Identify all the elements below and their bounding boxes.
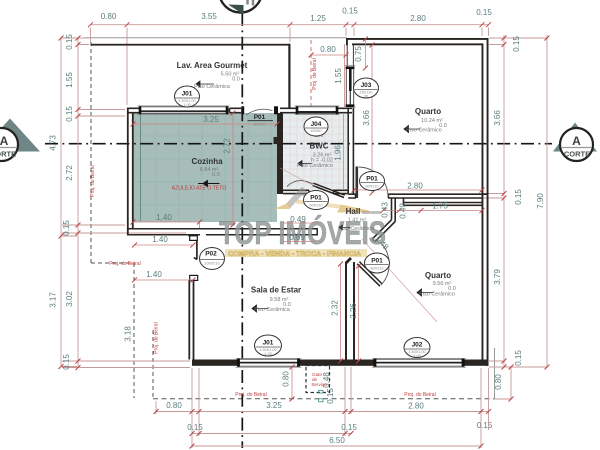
svg-text:J01: J01 — [263, 340, 274, 347]
svg-text:0.15: 0.15 — [342, 7, 358, 16]
svg-text:A: A — [572, 134, 581, 148]
svg-text:0.15: 0.15 — [512, 36, 521, 52]
svg-text:CORTE: CORTE — [564, 150, 590, 159]
svg-text:3.66: 3.66 — [493, 110, 502, 126]
svg-text:0.15: 0.15 — [187, 423, 203, 432]
svg-text:Proj. do Beiral: Proj. do Beiral — [90, 165, 96, 196]
svg-text:Piso Cerâmica: Piso Cerâmica — [194, 84, 231, 90]
svg-text:Proj. do Beiral: Proj. do Beiral — [404, 392, 435, 398]
svg-text:80X210: 80X210 — [253, 122, 266, 126]
svg-text:J02: J02 — [412, 342, 423, 349]
svg-text:0.80: 0.80 — [320, 45, 336, 54]
svg-text:Serviço: Serviço — [311, 382, 327, 387]
svg-text:1.40: 1.40 — [156, 213, 172, 222]
svg-text:0.15: 0.15 — [514, 350, 523, 366]
svg-text:Piso Cerâmica: Piso Cerâmica — [338, 226, 375, 232]
svg-text:0.15: 0.15 — [341, 423, 357, 432]
svg-text:0.43: 0.43 — [381, 202, 390, 218]
svg-text:3.66: 3.66 — [362, 110, 371, 126]
svg-text:0.15: 0.15 — [477, 421, 493, 430]
svg-text:Cozinha: Cozinha — [191, 157, 223, 166]
svg-text:0.15: 0.15 — [326, 388, 335, 404]
svg-text:1.75: 1.75 — [432, 202, 448, 211]
svg-text:1.40: 1.40 — [146, 270, 162, 279]
svg-text:3.79: 3.79 — [493, 269, 502, 285]
svg-text:80X210: 80X210 — [370, 267, 383, 271]
svg-text:1.25: 1.25 — [310, 14, 326, 23]
svg-text:Piso Cerâmico: Piso Cerâmico — [297, 163, 333, 169]
svg-text:0.0: 0.0 — [232, 77, 240, 83]
svg-text:1.00: 1.00 — [264, 352, 271, 356]
svg-text:1.00: 1.00 — [183, 103, 190, 107]
svg-text:2.26: 2.26 — [349, 303, 358, 319]
svg-text:A: A — [0, 134, 9, 148]
svg-text:3.25: 3.25 — [203, 115, 219, 124]
svg-text:80X210: 80X210 — [365, 185, 378, 189]
svg-text:Proj. do Beiral: Proj. do Beiral — [154, 322, 160, 353]
svg-text:0.49: 0.49 — [399, 203, 408, 219]
svg-text:0.49: 0.49 — [290, 215, 306, 224]
svg-text:2.80: 2.80 — [407, 182, 423, 191]
svg-text:0.75: 0.75 — [354, 46, 363, 62]
svg-text:Lav. Area Gourmet: Lav. Area Gourmet — [177, 61, 248, 70]
svg-text:Piso Cerâmico: Piso Cerâmico — [406, 128, 442, 134]
svg-text:COMPRA - VENDA - TROCA - FINAN: COMPRA - VENDA - TROCA - FINANCIA — [228, 251, 361, 258]
svg-text:4.73: 4.73 — [49, 135, 58, 151]
svg-text:0.15: 0.15 — [476, 8, 492, 17]
svg-text:Proj. do Beiral: Proj. do Beiral — [235, 392, 266, 398]
svg-text:1.55: 1.55 — [65, 72, 74, 88]
svg-text:0.15: 0.15 — [62, 220, 71, 236]
svg-text:Piso Cerâmico: Piso Cerâmico — [419, 292, 455, 298]
svg-text:3.25: 3.25 — [266, 401, 282, 410]
svg-text:2.80: 2.80 — [410, 14, 426, 23]
svg-text:NORTE: NORTE — [0, 150, 16, 159]
svg-text:P01: P01 — [254, 114, 266, 121]
svg-text:100X210: 100X210 — [204, 262, 219, 266]
svg-text:0.15: 0.15 — [62, 354, 71, 370]
svg-text:Proj. do Beiral: Proj. do Beiral — [312, 58, 318, 89]
svg-text:3.17: 3.17 — [49, 292, 58, 308]
svg-text:P01: P01 — [371, 258, 383, 265]
svg-text:1.00: 1.00 — [413, 354, 420, 358]
svg-text:J04: J04 — [311, 121, 322, 128]
svg-text:P02: P02 — [205, 251, 217, 258]
svg-text:Quarto: Quarto — [425, 271, 451, 280]
svg-text:7.90: 7.90 — [536, 193, 545, 209]
svg-text:2.72: 2.72 — [223, 138, 232, 154]
svg-text:J01: J01 — [182, 91, 193, 98]
svg-text:0.0: 0.0 — [212, 172, 220, 178]
svg-text:BWC: BWC — [309, 142, 328, 151]
svg-text:Sala de Estar: Sala de Estar — [251, 286, 301, 295]
svg-text:1.41 m²: 1.41 m² — [348, 218, 367, 224]
svg-text:3.02: 3.02 — [65, 291, 74, 307]
svg-text:Piso Cerâmica: Piso Cerâmica — [254, 307, 291, 313]
svg-text:Quarto: Quarto — [415, 107, 441, 116]
svg-text:0.80: 0.80 — [166, 401, 182, 410]
svg-text:0.80: 0.80 — [282, 371, 291, 387]
svg-text:1.96: 1.96 — [334, 145, 343, 161]
svg-text:P01: P01 — [366, 176, 378, 183]
svg-text:0.15: 0.15 — [65, 106, 74, 122]
svg-text:1.55: 1.55 — [334, 68, 343, 84]
svg-text:2.80: 2.80 — [408, 402, 424, 411]
svg-text:0.80: 0.80 — [101, 12, 117, 21]
svg-text:2.32: 2.32 — [331, 300, 340, 316]
svg-text:AZULEJO ATÉ O TETO: AZULEJO ATÉ O TETO — [172, 185, 227, 192]
svg-text:J03: J03 — [361, 82, 372, 89]
svg-text:0.69: 0.69 — [289, 233, 305, 242]
svg-text:1.40: 1.40 — [152, 235, 168, 244]
svg-text:Hall: Hall — [346, 207, 361, 216]
svg-text:95: 95 — [364, 95, 368, 99]
svg-text:0.15: 0.15 — [514, 189, 523, 205]
svg-text:40X60: 40X60 — [311, 129, 322, 133]
svg-text:3.18: 3.18 — [124, 326, 133, 342]
svg-text:0.80: 0.80 — [494, 374, 503, 390]
svg-text:3.55: 3.55 — [201, 12, 217, 21]
svg-text:6.50: 6.50 — [329, 436, 345, 445]
svg-text:P01: P01 — [310, 195, 322, 202]
svg-text:60X210: 60X210 — [309, 204, 322, 208]
svg-text:2.72: 2.72 — [65, 165, 74, 181]
svg-text:Proj. do Beiral: Proj. do Beiral — [109, 261, 140, 267]
svg-text:0.15: 0.15 — [65, 34, 74, 50]
